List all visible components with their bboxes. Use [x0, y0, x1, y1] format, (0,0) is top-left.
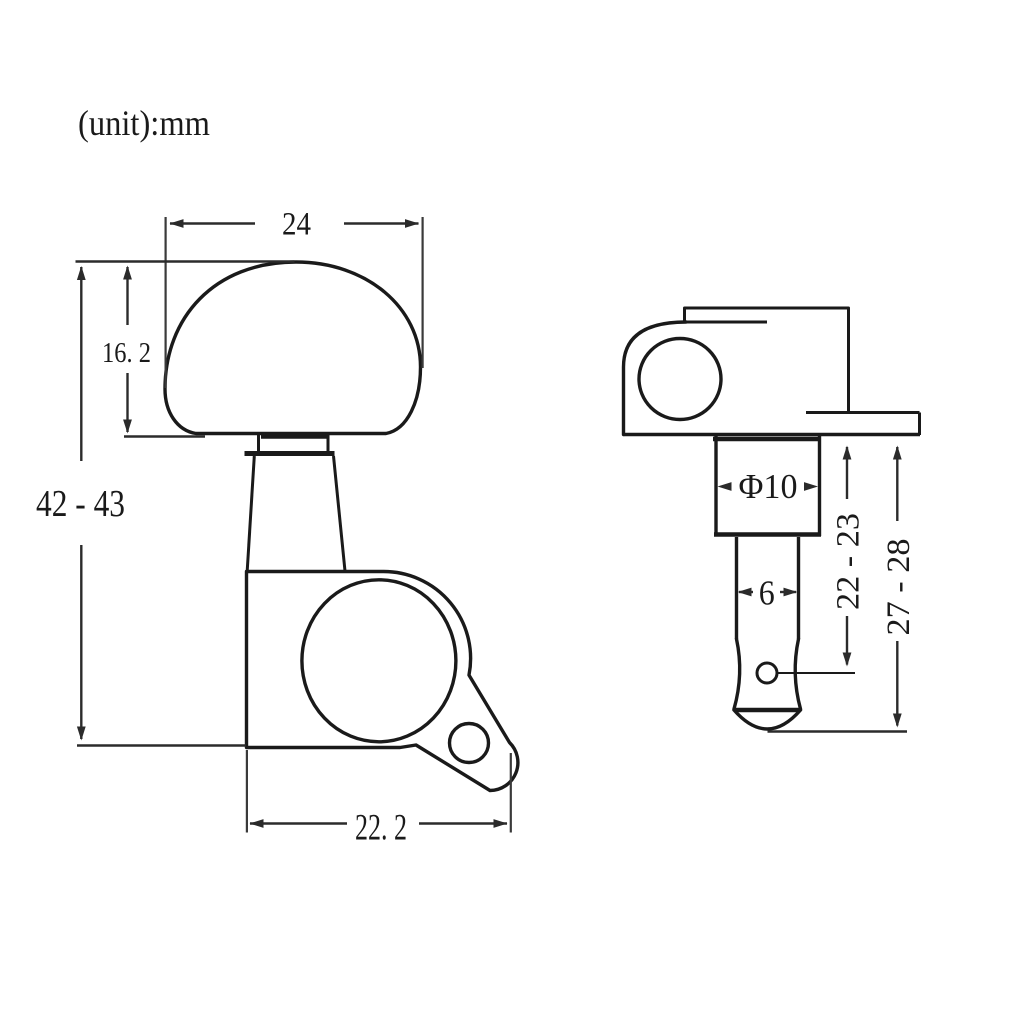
svg-text:42 - 43: 42 - 43 [36, 483, 125, 525]
svg-text:6: 6 [759, 574, 775, 613]
svg-text:24: 24 [282, 207, 311, 243]
svg-text:16. 2: 16. 2 [102, 337, 151, 369]
svg-text:Φ10: Φ10 [739, 467, 798, 506]
svg-text:22 - 23: 22 - 23 [831, 513, 867, 610]
svg-text:22. 2: 22. 2 [355, 808, 407, 849]
svg-text:27 - 28: 27 - 28 [881, 539, 917, 636]
svg-text:(unit):mm: (unit):mm [78, 103, 210, 143]
